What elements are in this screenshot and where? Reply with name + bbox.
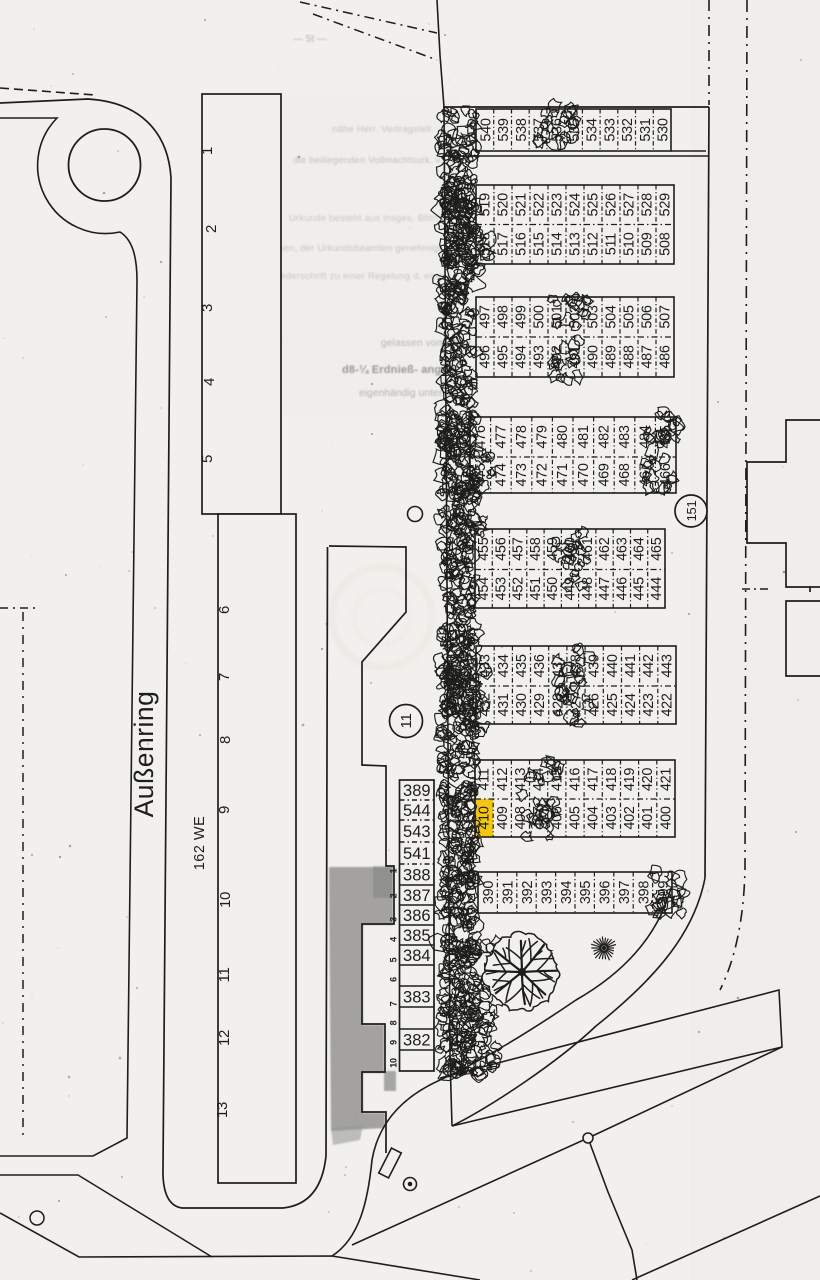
svg-text:538: 538 (514, 118, 530, 142)
svg-text:402: 402 (622, 806, 638, 830)
svg-text:507: 507 (658, 305, 674, 329)
svg-text:450: 450 (545, 577, 561, 601)
svg-text:515: 515 (532, 232, 548, 256)
svg-text:396: 396 (598, 881, 614, 905)
svg-text:514: 514 (550, 232, 566, 256)
svg-text:422: 422 (659, 693, 675, 717)
svg-text:513: 513 (568, 232, 584, 256)
svg-text:494: 494 (514, 345, 530, 369)
svg-text:5: 5 (199, 455, 216, 463)
svg-text:478: 478 (514, 425, 530, 449)
svg-text:495: 495 (496, 345, 512, 369)
svg-text:532: 532 (620, 118, 636, 142)
svg-text:530: 530 (656, 118, 672, 142)
svg-text:7: 7 (389, 1001, 399, 1006)
svg-text:9: 9 (216, 806, 233, 814)
svg-text:439: 439 (587, 654, 603, 678)
svg-text:418: 418 (604, 768, 620, 792)
svg-text:458: 458 (528, 537, 544, 561)
svg-text:4: 4 (389, 937, 399, 942)
svg-text:nähe Herr. Vertragstell.: nähe Herr. Vertragstell. (332, 124, 434, 135)
svg-text:428: 428 (550, 693, 566, 717)
svg-text:393: 393 (539, 881, 555, 905)
svg-text:493: 493 (532, 345, 548, 369)
svg-text:524: 524 (568, 193, 584, 217)
svg-text:6: 6 (216, 606, 233, 614)
svg-text:416: 416 (568, 768, 584, 792)
svg-text:484: 484 (638, 425, 654, 449)
svg-text:481: 481 (576, 425, 592, 449)
svg-text:544: 544 (403, 802, 431, 820)
svg-text:451: 451 (528, 577, 544, 601)
svg-text:520: 520 (496, 193, 512, 217)
svg-text:506: 506 (640, 305, 656, 329)
svg-text:d8-¼ Erdnieß- angetr.: d8-¼ Erdnieß- angetr. (342, 364, 459, 376)
svg-text:528: 528 (640, 193, 656, 217)
svg-text:4: 4 (201, 378, 218, 386)
svg-text:430: 430 (514, 693, 530, 717)
svg-text:10: 10 (217, 892, 234, 908)
svg-text:462: 462 (597, 537, 613, 561)
svg-text:465: 465 (649, 537, 665, 561)
svg-text:394: 394 (559, 881, 575, 905)
svg-text:387: 387 (403, 887, 431, 905)
svg-text:543: 543 (403, 823, 431, 841)
svg-text:425: 425 (605, 693, 621, 717)
svg-text:2: 2 (203, 225, 220, 233)
svg-text:444: 444 (649, 577, 665, 601)
svg-text:403: 403 (604, 806, 620, 830)
svg-text:523: 523 (550, 193, 566, 217)
svg-text:469: 469 (596, 463, 612, 487)
svg-text:486: 486 (658, 345, 674, 369)
svg-text:die beiliegenden Vollmachtsurk: die beiliegenden Vollmachtsurk. v. (293, 155, 443, 166)
svg-text:386: 386 (403, 907, 431, 925)
svg-text:405: 405 (568, 806, 584, 830)
svg-text:452: 452 (511, 577, 527, 601)
svg-text:11: 11 (216, 968, 233, 983)
svg-text:392: 392 (520, 881, 536, 905)
svg-text:464: 464 (632, 537, 648, 561)
svg-text:483: 483 (617, 425, 633, 449)
svg-text:397: 397 (617, 881, 633, 905)
svg-text:479: 479 (535, 425, 551, 449)
svg-text:436: 436 (532, 654, 548, 678)
svg-text:500: 500 (532, 305, 548, 329)
svg-text:421: 421 (658, 768, 674, 792)
svg-text:440: 440 (605, 654, 621, 678)
svg-text:443: 443 (659, 654, 675, 678)
svg-text:468: 468 (617, 463, 633, 487)
svg-text:404: 404 (586, 806, 602, 830)
svg-text:11: 11 (398, 714, 415, 729)
svg-text:1: 1 (389, 868, 399, 873)
svg-text:395: 395 (578, 881, 594, 905)
svg-text:540: 540 (478, 118, 494, 142)
svg-text:389: 389 (403, 782, 431, 800)
svg-text:527: 527 (622, 193, 638, 217)
svg-text:455: 455 (476, 537, 492, 561)
svg-text:534: 534 (585, 118, 601, 142)
svg-text:384: 384 (403, 947, 431, 965)
svg-text:5: 5 (389, 957, 399, 962)
svg-text:412: 412 (495, 768, 511, 792)
svg-text:420: 420 (640, 768, 656, 792)
svg-text:457: 457 (511, 537, 527, 561)
svg-text:509: 509 (640, 232, 656, 256)
svg-text:Außenring: Außenring (129, 691, 159, 818)
svg-text:417: 417 (586, 768, 602, 792)
svg-text:488: 488 (622, 345, 638, 369)
svg-text:435: 435 (514, 654, 530, 678)
svg-text:419: 419 (622, 768, 638, 792)
svg-text:470: 470 (576, 463, 592, 487)
svg-text:499: 499 (514, 305, 530, 329)
svg-text:424: 424 (623, 693, 639, 717)
svg-text:445: 445 (632, 577, 648, 601)
svg-text:480: 480 (555, 425, 571, 449)
svg-text:6: 6 (389, 977, 399, 982)
svg-text:8: 8 (389, 1020, 399, 1025)
svg-text:401: 401 (640, 806, 656, 830)
svg-text:463: 463 (614, 537, 630, 561)
svg-text:429: 429 (532, 693, 548, 717)
svg-text:8: 8 (217, 736, 234, 744)
svg-text:512: 512 (586, 232, 602, 256)
svg-text:413: 413 (513, 768, 529, 792)
svg-text:471: 471 (555, 463, 571, 487)
svg-text:162 WE: 162 WE (192, 816, 208, 871)
svg-text:489: 489 (604, 345, 620, 369)
svg-text:456: 456 (493, 537, 509, 561)
svg-text:382: 382 (403, 1032, 431, 1050)
svg-text:7: 7 (216, 673, 233, 681)
svg-text:472: 472 (535, 463, 551, 487)
svg-text:391: 391 (501, 881, 517, 905)
svg-text:508: 508 (658, 232, 674, 256)
svg-text:423: 423 (641, 693, 657, 717)
svg-text:505: 505 (622, 305, 638, 329)
svg-text:383: 383 (403, 989, 431, 1007)
svg-text:510: 510 (622, 232, 638, 256)
svg-text:9: 9 (389, 1040, 399, 1045)
svg-text:453: 453 (493, 577, 509, 601)
svg-text:Urkunde besteht aus insges. Bl: Urkunde besteht aus insges. Blttrn. (289, 213, 444, 224)
svg-text:529: 529 (658, 193, 674, 217)
svg-text:503: 503 (586, 305, 602, 329)
svg-text:517: 517 (496, 232, 512, 256)
svg-text:526: 526 (604, 193, 620, 217)
svg-text:447: 447 (597, 577, 613, 601)
svg-text:522: 522 (532, 193, 548, 217)
svg-text:13: 13 (214, 1102, 231, 1118)
svg-text:473: 473 (514, 463, 530, 487)
svg-text:151: 151 (684, 501, 699, 522)
svg-text:497: 497 (478, 305, 494, 329)
svg-text:539: 539 (496, 118, 512, 142)
svg-text:1: 1 (199, 147, 216, 155)
svg-text:398: 398 (636, 881, 652, 905)
svg-text:— 5t —: — 5t — (293, 34, 327, 45)
svg-text:3: 3 (389, 917, 399, 922)
svg-text:477: 477 (493, 425, 509, 449)
svg-text:533: 533 (603, 118, 619, 142)
svg-text:541: 541 (403, 845, 431, 863)
svg-text:446: 446 (614, 577, 630, 601)
svg-text:496: 496 (478, 345, 494, 369)
svg-text:521: 521 (514, 193, 530, 217)
svg-text:10: 10 (389, 1058, 399, 1068)
svg-text:441: 441 (623, 654, 639, 678)
svg-text:Niederschrift zu einer Regelun: Niederschrift zu einer Regelung d. einze… (271, 271, 453, 282)
svg-text:531: 531 (638, 118, 654, 142)
svg-text:400: 400 (658, 806, 674, 830)
svg-text:525: 525 (586, 193, 602, 217)
svg-text:498: 498 (496, 305, 512, 329)
svg-text:385: 385 (403, 927, 431, 945)
svg-text:442: 442 (641, 654, 657, 678)
svg-text:482: 482 (596, 425, 612, 449)
svg-text:431: 431 (496, 693, 512, 717)
svg-text:2: 2 (389, 893, 399, 898)
svg-text:516: 516 (514, 232, 530, 256)
svg-text:490: 490 (586, 345, 602, 369)
svg-text:12: 12 (216, 1030, 233, 1046)
svg-text:511: 511 (604, 233, 620, 255)
svg-text:504: 504 (604, 305, 620, 329)
svg-text:388: 388 (403, 867, 431, 885)
svg-text:409: 409 (495, 806, 511, 830)
svg-text:3: 3 (199, 304, 216, 312)
svg-text:434: 434 (496, 654, 512, 678)
svg-text:487: 487 (640, 345, 656, 369)
